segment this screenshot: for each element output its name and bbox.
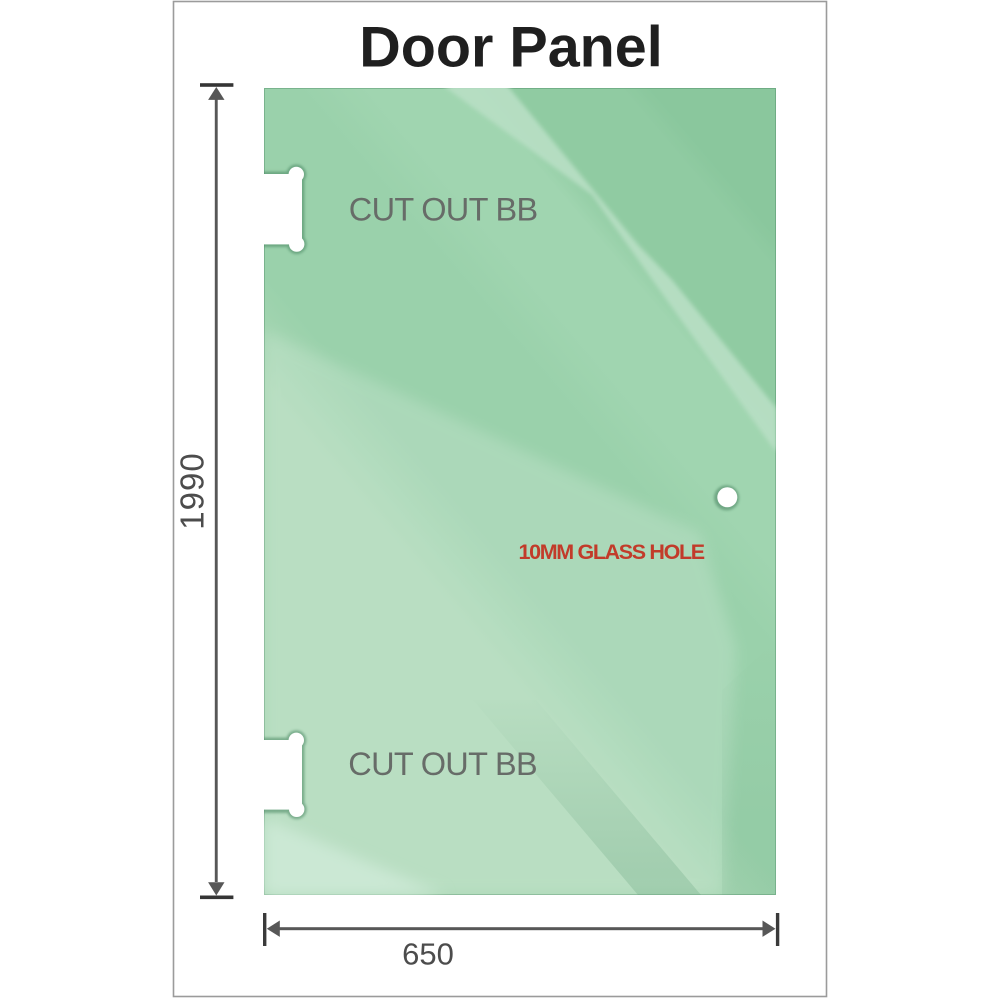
svg-text:CUT OUT BB: CUT OUT BB	[348, 746, 537, 782]
svg-text:Door Panel: Door Panel	[359, 16, 663, 80]
svg-text:650: 650	[402, 937, 454, 972]
svg-text:1990: 1990	[174, 452, 211, 529]
svg-text:10MM GLASS HOLE: 10MM GLASS HOLE	[519, 540, 705, 564]
svg-text:CUT OUT BB: CUT OUT BB	[349, 192, 538, 228]
